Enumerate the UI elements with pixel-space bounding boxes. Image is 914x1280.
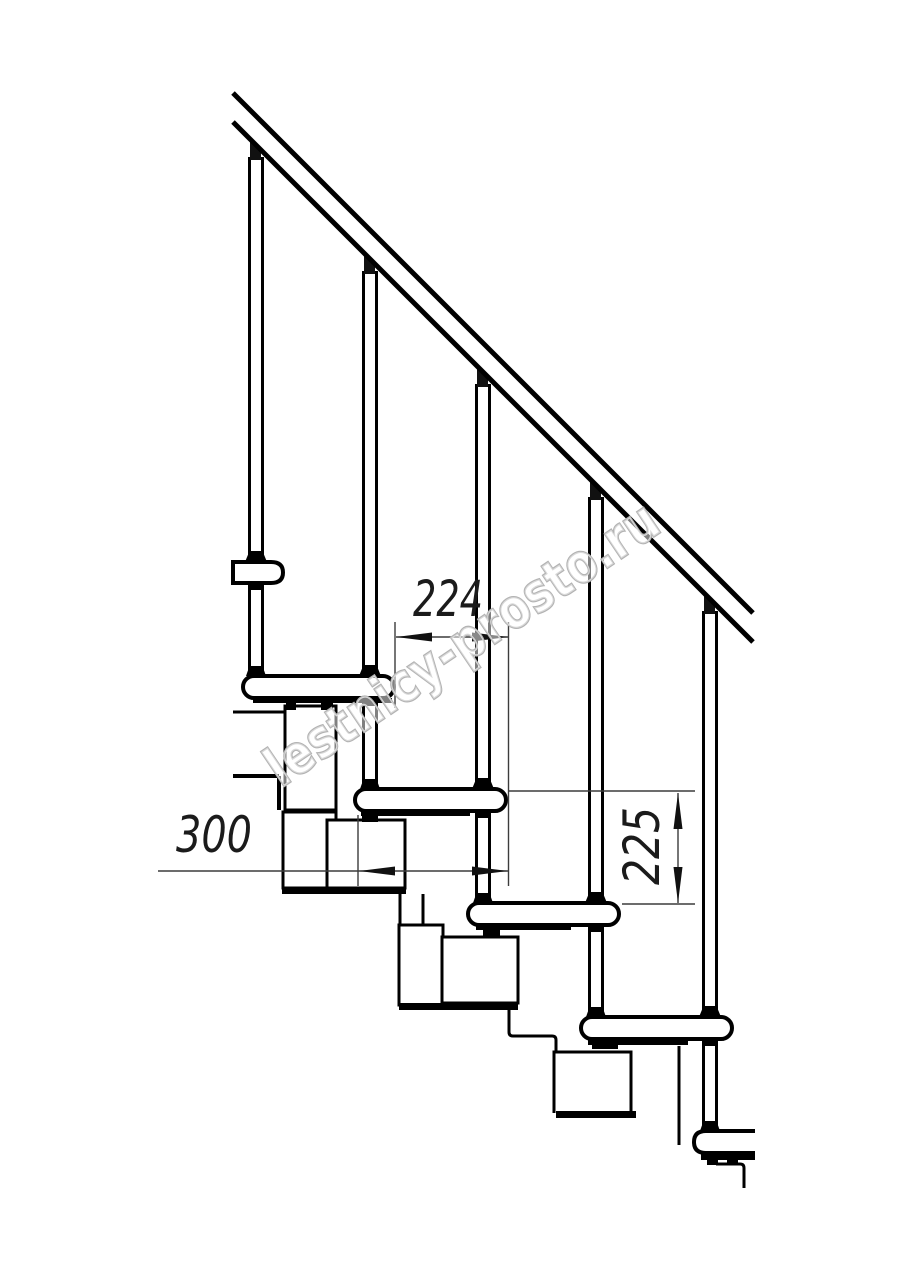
baluster-3-base-flange [473, 893, 493, 903]
dimension-riser-height-label: 225 [613, 807, 671, 885]
baluster-5-under-flange [702, 1040, 718, 1046]
stringer-module-2-box [327, 820, 405, 888]
stringer-module-4-box [554, 1052, 631, 1113]
handrail-lower-line [233, 122, 753, 642]
module-5-lower-fragment [716, 1164, 744, 1188]
upper-flight-step-end-view [233, 562, 283, 583]
baluster-1-base-flange [246, 666, 266, 676]
step-4-mount-tab [592, 1044, 618, 1049]
baluster-5-base-flange [700, 1121, 720, 1131]
baluster-4-base-flange [586, 1007, 606, 1017]
step-2-mount-tab [362, 816, 378, 822]
baluster-1-under-flange [248, 584, 264, 590]
watermark-text: lestnicy-prosto.ru [253, 488, 671, 799]
dim-225-arrow-down [674, 867, 683, 903]
step-1-mount-tab-a [286, 703, 296, 710]
staircase-technical-drawing: 224 300 225 lestnicy-prosto.ru [0, 0, 914, 1280]
baluster-3-under-flange [475, 812, 491, 818]
drawing-page: 224 300 225 lestnicy-prosto.ru [0, 0, 914, 1280]
dimension-tread-depth-label: 300 [176, 806, 252, 864]
baluster-2-base-flange [360, 779, 380, 789]
stringer-module-4-bottom-plate [556, 1111, 636, 1118]
dim-225-arrow-up [674, 793, 683, 829]
handrail-upper-line [233, 93, 753, 613]
stringer-module-3-hanger-box [399, 925, 443, 1005]
stringer-module-3-box [442, 937, 518, 1003]
step-5-mount-tab-a [707, 1160, 718, 1165]
step-5-underside-plate [701, 1152, 755, 1160]
step-3-tread [468, 903, 619, 925]
stringer-module-3-bottom-plate [399, 1003, 518, 1010]
step-2-underside-plate [361, 811, 470, 816]
step-5-mount-tab-b [727, 1160, 738, 1165]
step-4-tread [581, 1017, 732, 1039]
module-3-4-connector [509, 1010, 556, 1052]
baluster-4-under-flange [588, 926, 604, 932]
step-5-tread-partial [694, 1131, 755, 1153]
step-3-underside-plate [476, 925, 571, 930]
step-2-tread [355, 789, 506, 811]
step-3-mount-tab [483, 930, 500, 936]
stringer-module-2-bottom-plate [282, 887, 406, 894]
